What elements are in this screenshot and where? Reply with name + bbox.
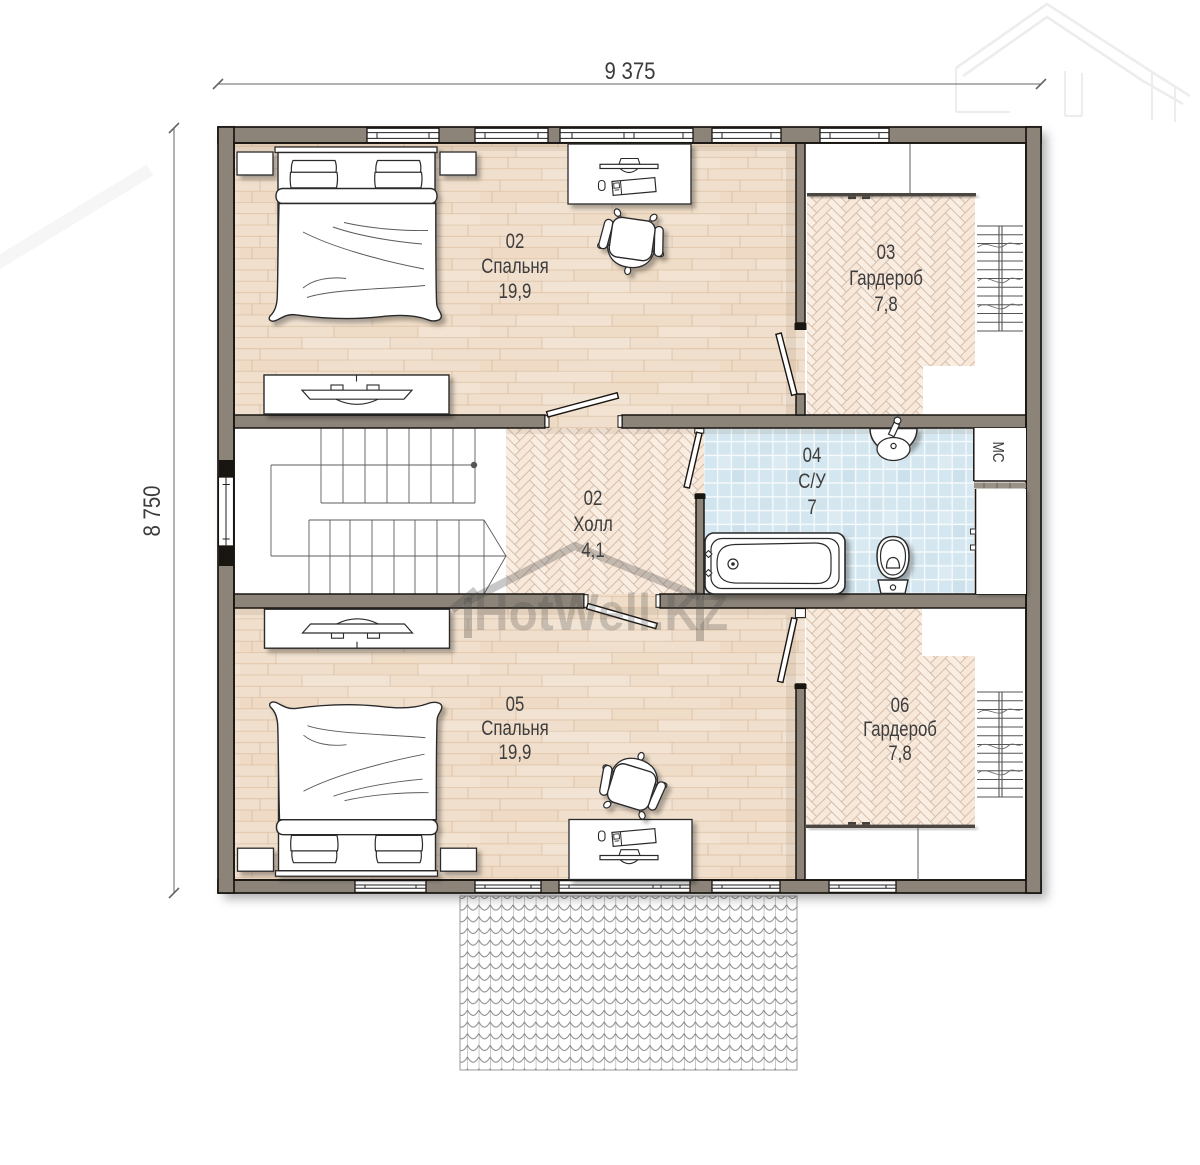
svg-text:05: 05 xyxy=(506,693,525,716)
svg-text:7,8: 7,8 xyxy=(888,742,911,765)
svg-text:Спальня: Спальня xyxy=(481,255,548,278)
svg-text:19,9: 19,9 xyxy=(499,280,532,303)
svg-text:7: 7 xyxy=(807,496,816,519)
svg-text:04: 04 xyxy=(803,444,822,467)
svg-text:8 750: 8 750 xyxy=(138,485,165,536)
svg-text:С/У: С/У xyxy=(798,470,826,493)
svg-text:19,9: 19,9 xyxy=(499,741,532,764)
svg-text:МС: МС xyxy=(989,441,1006,462)
svg-text:Спальня: Спальня xyxy=(481,717,548,740)
svg-text:02: 02 xyxy=(584,487,603,510)
svg-text:9 375: 9 375 xyxy=(604,57,655,84)
svg-text:Холл: Холл xyxy=(573,513,613,536)
svg-text:02: 02 xyxy=(506,230,525,253)
svg-text:06: 06 xyxy=(891,694,910,717)
svg-text:03: 03 xyxy=(877,241,896,264)
svg-text:Гардероб: Гардероб xyxy=(863,718,937,741)
svg-text:HotWell.KZ: HotWell.KZ xyxy=(474,583,728,641)
svg-text:7,8: 7,8 xyxy=(874,293,897,316)
svg-text:Гардероб: Гардероб xyxy=(849,267,923,290)
